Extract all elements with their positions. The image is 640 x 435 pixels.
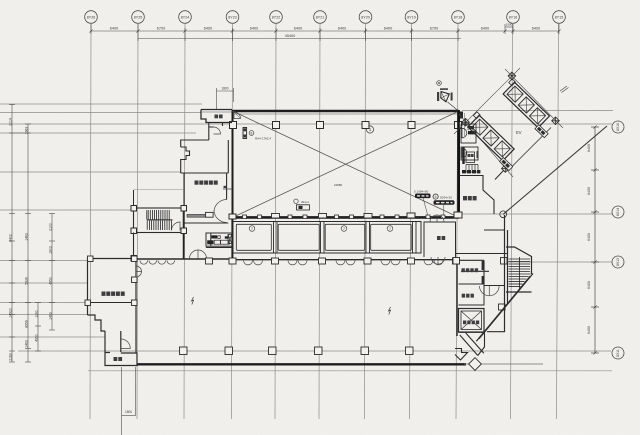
svg-text:8Y25: 8Y25 <box>134 15 142 19</box>
svg-text:1463: 1463 <box>49 312 53 320</box>
svg-text:8X13: 8X13 <box>616 258 620 266</box>
svg-text:RA4-1782.4: RA4-1782.4 <box>255 137 271 141</box>
svg-text:14920: 14920 <box>9 308 13 318</box>
svg-text:6400: 6400 <box>338 27 346 31</box>
svg-text:8Y18: 8Y18 <box>454 15 462 19</box>
svg-text:6: 6 <box>435 195 437 199</box>
svg-text:4950: 4950 <box>35 334 39 342</box>
svg-text:7: 7 <box>389 227 391 231</box>
svg-text:2100: 2100 <box>49 223 53 231</box>
svg-text:6400: 6400 <box>587 233 591 241</box>
svg-text:24880: 24880 <box>334 183 343 187</box>
svg-text:1500: 1500 <box>125 410 132 414</box>
svg-text:1963: 1963 <box>25 127 29 135</box>
svg-text:8X14: 8X14 <box>616 208 620 216</box>
svg-text:1160: 1160 <box>35 310 39 317</box>
svg-text:1463: 1463 <box>25 340 29 348</box>
svg-text:1800: 1800 <box>221 87 228 91</box>
svg-text:6400: 6400 <box>481 27 489 31</box>
svg-text:6400: 6400 <box>587 281 591 289</box>
svg-text:8034+30: 8034+30 <box>440 195 452 199</box>
svg-text:8Y15: 8Y15 <box>555 15 563 19</box>
svg-text:5936: 5936 <box>25 277 29 285</box>
svg-text:8Y21: 8Y21 <box>316 15 324 19</box>
svg-text:6402: 6402 <box>9 234 13 242</box>
svg-text:6700: 6700 <box>430 27 438 31</box>
svg-text:1500: 1500 <box>506 22 513 26</box>
svg-text:8: 8 <box>251 131 253 135</box>
svg-text:8Y24: 8Y24 <box>181 15 189 19</box>
svg-text:6400: 6400 <box>384 27 392 31</box>
svg-text:45400: 45400 <box>285 34 296 38</box>
svg-text:6700: 6700 <box>157 27 165 31</box>
svg-text:6400: 6400 <box>587 187 591 195</box>
svg-text:6400: 6400 <box>204 27 212 31</box>
svg-text:6400: 6400 <box>294 27 302 31</box>
svg-text:6400: 6400 <box>532 27 540 31</box>
svg-text:7: 7 <box>251 227 253 231</box>
svg-text:6400: 6400 <box>250 27 258 31</box>
svg-text:6400: 6400 <box>110 27 118 31</box>
svg-text:6400: 6400 <box>587 326 591 334</box>
svg-text:8Y16: 8Y16 <box>509 15 517 19</box>
svg-text:7: 7 <box>343 227 345 231</box>
svg-text:394+4: 394+4 <box>301 200 309 204</box>
svg-text:2183: 2183 <box>9 353 13 361</box>
svg-text:4950: 4950 <box>49 277 53 285</box>
svg-text:8Y22: 8Y22 <box>272 15 280 19</box>
svg-text:8X11: 8X11 <box>616 349 620 357</box>
svg-text:8956: 8956 <box>25 320 29 328</box>
svg-text:EV: EV <box>516 130 522 135</box>
svg-text:1803: 1803 <box>49 246 53 254</box>
svg-text:6400: 6400 <box>587 144 591 152</box>
svg-text:2014: 2014 <box>9 118 13 126</box>
svg-text:8Y19: 8Y19 <box>407 15 415 19</box>
svg-text:1463: 1463 <box>25 233 29 241</box>
svg-text:5 1084+80: 5 1084+80 <box>414 190 429 194</box>
svg-text:8X16: 8X16 <box>616 123 620 131</box>
svg-text:8Y20: 8Y20 <box>361 15 369 19</box>
svg-text:8Y26: 8Y26 <box>87 15 95 19</box>
svg-text:8Y23: 8Y23 <box>228 15 236 19</box>
